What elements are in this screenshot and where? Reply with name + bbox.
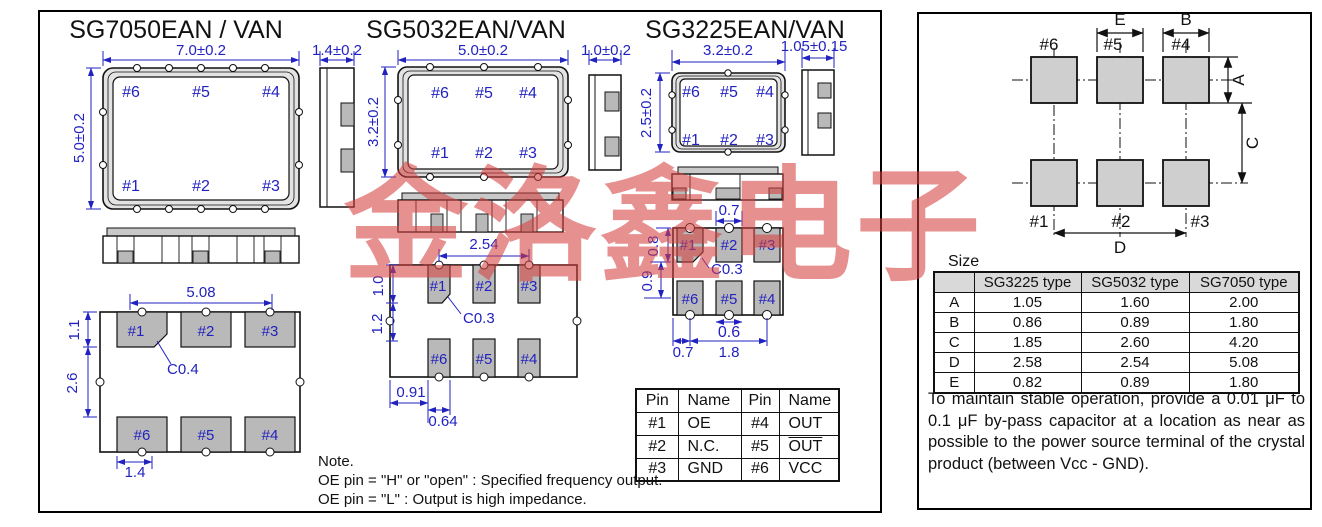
datasheet-page: SG7050EAN / VAN #6 #5 #4 #1 #2 #3 <box>0 0 1322 527</box>
size-header-row: SG3225 type SG5032 type SG7050 type <box>934 272 1299 293</box>
pin-header: Pin <box>741 389 779 412</box>
pin-header: Pin <box>636 389 678 412</box>
size-table-caption: Size <box>948 253 979 271</box>
table-row: #1 OE #4 OUT <box>636 412 839 435</box>
name-header: Name <box>779 389 839 412</box>
out-bar-signal: OUT <box>789 438 823 455</box>
size-row: C 1.85 2.60 4.20 <box>934 333 1299 353</box>
size-row: A 1.05 1.60 2.00 <box>934 293 1299 313</box>
size-row: D 2.58 2.54 5.08 <box>934 353 1299 373</box>
size-table: SG3225 type SG5032 type SG7050 type A 1.… <box>933 271 1300 394</box>
note-line1: OE pin = "H" or "open" : Specified frequ… <box>318 471 678 490</box>
oe-note: Note. OE pin = "H" or "open" : Specified… <box>318 452 678 509</box>
note-title: Note. <box>318 452 678 471</box>
size-row: B 0.86 0.89 1.80 <box>934 313 1299 333</box>
note-line2: OE pin = "L" : Output is high impedance. <box>318 490 678 509</box>
bypass-capacitor-note: To maintain stable operation, provide a … <box>928 389 1305 475</box>
name-header: Name <box>678 389 741 412</box>
